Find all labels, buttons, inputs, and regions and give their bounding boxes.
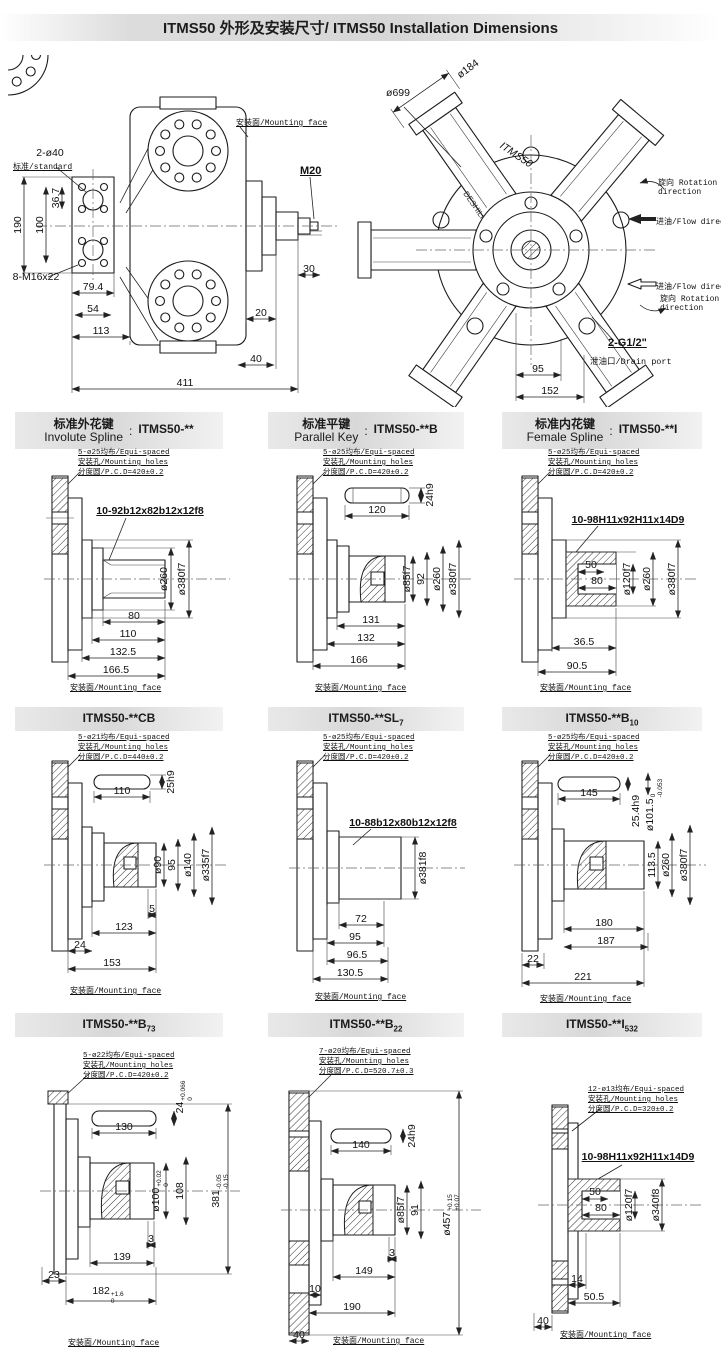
dim-30: 30 — [303, 263, 315, 275]
dim-36-5: 36.5 — [574, 636, 594, 648]
mounting-face-label: 安装面/Mounting face — [560, 1329, 651, 1340]
dim-113: 113 — [93, 325, 110, 337]
dim-o260: ø260 — [158, 567, 170, 591]
dim-91: 91 — [409, 1204, 421, 1216]
drawing-involute-spline: 5-ø25均布/Equi-spaced安装孔/Mounting holes分度圆… — [8, 448, 246, 706]
mounting-holes-annotation: 5-ø25均布/Equi-spaced安装孔/Mounting holes分度圆… — [78, 448, 170, 478]
dim-411: 411 — [177, 377, 194, 389]
dim-113-5: 113.5 — [646, 852, 658, 878]
sl7-drawing — [253, 733, 496, 1008]
dim-95: 95 — [532, 363, 544, 375]
dim-key-25-4h9: 25.4h9 — [630, 795, 642, 827]
dim-o381f8: ø381f8 — [417, 852, 429, 885]
dim-bore-80: 80 — [591, 575, 603, 587]
mounting-holes-annotation: 5-ø21均布/Equi-spaced安装孔/Mounting holes分度圆… — [78, 733, 170, 763]
dim-o120f7: ø120f7 — [623, 1189, 635, 1222]
dim-50-5: 50.5 — [584, 1291, 604, 1303]
dim-187: 187 — [597, 935, 615, 947]
dim-40: 40 — [537, 1315, 549, 1327]
dim-o335f7: ø335f7 — [200, 849, 212, 882]
drawing-b10: 5-ø25均布/Equi-spaced安装孔/Mounting holes分度圆… — [478, 733, 721, 1008]
dim-o120f7: ø120f7 — [621, 563, 633, 596]
dim-key-140: 140 — [352, 1139, 370, 1151]
dim-96-5: 96.5 — [347, 949, 367, 961]
dim-131: 131 — [362, 614, 380, 626]
mounting-holes-annotation: 5-ø25均布/Equi-spaced安装孔/Mounting holes分度圆… — [548, 733, 640, 763]
dim-22: 22 — [527, 953, 539, 965]
dim-190: 190 — [12, 216, 24, 234]
model-name: ITMS50-** — [138, 422, 193, 438]
flow-direction-label-bottom: 进油/Flow direction — [656, 281, 721, 292]
header-sl7: ITMS50-**SL7 — [268, 707, 464, 731]
dim-36-7: 36.7 — [50, 188, 62, 208]
header-involute-spline: 标准外花键Involute Spline : ITMS50-** — [15, 412, 223, 449]
dim-14: 14 — [571, 1273, 583, 1285]
dim-130-5: 130.5 — [337, 967, 363, 979]
mounting-holes-annotation: 5-ø25均布/Equi-spaced安装孔/Mounting holes分度圆… — [323, 448, 415, 478]
mounting-face-label: 安装面/Mounting face — [70, 985, 161, 996]
side-view: 安装面/Mounting face 2-ø40 标准/standard 190 … — [8, 55, 358, 407]
rotation-direction-label-top: 旋向 Rotation direction — [658, 179, 721, 197]
dim-110: 110 — [120, 628, 137, 640]
header-i532: ITMS50-**I532 — [502, 1013, 702, 1037]
drawing-i532: 12-ø13均布/Equi-spaced安装孔/Mounting holes分度… — [510, 1075, 721, 1361]
dim-20: 20 — [255, 307, 267, 319]
header-b73: ITMS50-**B73 — [15, 1013, 223, 1037]
page-title-text: ITMS50 外形及安装尺寸/ ITMS50 Installation Dime… — [163, 17, 558, 38]
dim-80: 80 — [128, 610, 140, 622]
front-view: ø699 ø184 ITMS50 DESHILI 旋向 Rotation dir… — [356, 55, 720, 407]
dim-o380f7: ø380f7 — [666, 563, 678, 596]
dim-o260: ø260 — [641, 567, 653, 591]
mounting-face-label: 安装面/Mounting face — [540, 993, 631, 1004]
dim-95: 95 — [349, 931, 361, 943]
standard-label: 标准/standard — [13, 161, 72, 172]
dim-o100-tol: ø100+0.020 — [150, 1170, 170, 1211]
b22-drawing — [253, 1045, 498, 1357]
dim-o101-5-tol: ø101.50-0.053 — [644, 779, 664, 831]
dim-key-24h9: 24h9 — [424, 483, 436, 506]
header-parallel-key: 标准平键Parallel Key : ITMS50-**B — [268, 412, 464, 449]
dim-key-120: 120 — [368, 504, 386, 516]
header-female-spline: 标准内花键Female Spline : ITMS50-**I — [502, 412, 702, 449]
drawing-b73: 5-ø22均布/Equi-spaced安装孔/Mounting holes分度圆… — [8, 1045, 253, 1357]
dim-190: 190 — [343, 1301, 361, 1313]
header-cb: ITMS50-**CB — [15, 707, 223, 731]
drawing-cb: 5-ø21均布/Equi-spaced安装孔/Mounting holes分度圆… — [8, 733, 251, 1008]
dim-10: 10 — [309, 1283, 321, 1295]
dim-152: 152 — [541, 385, 559, 397]
mounting-face-label: 安装面/Mounting face — [68, 1337, 159, 1348]
dim-key-110: 110 — [114, 785, 131, 797]
dim-2-o40: 2-ø40 — [36, 147, 63, 159]
dim-221: 221 — [574, 971, 592, 983]
header-cn: 标准外花键 — [54, 418, 114, 431]
header-en: Involute Spline — [44, 431, 123, 444]
spline-spec-label: 10-88b12x80b12x12f8 — [349, 817, 456, 829]
dim-166: 166 — [350, 654, 368, 666]
mounting-holes-annotation: 5-ø25均布/Equi-spaced安装孔/Mounting holes分度圆… — [323, 733, 415, 763]
dim-o140: ø140 — [182, 853, 194, 877]
dim-108: 108 — [174, 1182, 186, 1200]
dim-40: 40 — [293, 1329, 305, 1341]
dim-149: 149 — [355, 1265, 373, 1277]
dim-key-24h9: 24h9 — [406, 1124, 418, 1147]
dim-o260: ø260 — [660, 853, 672, 877]
drain-port-label: 泄油口/Drain port — [590, 355, 672, 367]
cb-drawing — [8, 733, 251, 1008]
mounting-face-label: 安装面/Mounting face — [315, 682, 406, 693]
side-view-drawing — [8, 55, 358, 407]
dim-8-m16x22: 8-M16x22 — [13, 271, 60, 283]
flow-direction-label-top: 进油/Flow direction — [656, 216, 721, 227]
dim-o85f7: ø85f7 — [401, 566, 413, 593]
spline-spec-label: 10-92b12x82b12x12f8 — [96, 505, 203, 517]
catalog-page: ITMS50 外形及安装尺寸/ ITMS50 Installation Dime… — [0, 0, 721, 1361]
dim-90-5: 90.5 — [567, 660, 587, 672]
dim-o380f7: ø380f7 — [176, 563, 188, 596]
dim-key-130: 130 — [115, 1121, 133, 1133]
dim-95: 95 — [166, 859, 178, 871]
dim-381-tol: 381-0.05-0.15 — [210, 1174, 230, 1207]
dim-o340f8: ø340f8 — [650, 1189, 662, 1222]
drawing-sl7: 5-ø25均布/Equi-spaced安装孔/Mounting holes分度圆… — [253, 733, 496, 1008]
dim-24: 24 — [74, 939, 86, 951]
dim-o85f7: ø85f7 — [395, 1197, 407, 1224]
header-sep: : — [129, 424, 132, 438]
dim-key-24-tol: 24+0.0660 — [174, 1081, 194, 1114]
page-title: ITMS50 外形及安装尺寸/ ITMS50 Installation Dime… — [0, 14, 721, 41]
rotation-cn: 旋向 — [658, 179, 674, 188]
dim-o699: ø699 — [386, 87, 410, 99]
mounting-holes-annotation: 12-ø13均布/Equi-spaced安装孔/Mounting holes分度… — [588, 1085, 684, 1115]
dim-123: 123 — [115, 921, 133, 933]
dim-79-4: 79.4 — [83, 281, 103, 293]
drawing-b22: 7-ø20均布/Equi-spaced安装孔/Mounting holes分度圆… — [253, 1045, 498, 1357]
model-name: ITMS50-**I — [619, 422, 678, 438]
dim-40: 40 — [250, 353, 262, 365]
dim-5: 5 — [149, 903, 155, 915]
dim-153: 153 — [103, 957, 121, 969]
dim-72: 72 — [355, 913, 367, 925]
mounting-holes-annotation: 5-ø25均布/Equi-spaced安装孔/Mounting holes分度圆… — [548, 448, 640, 478]
dim-key-145: 145 — [580, 787, 598, 799]
mounting-holes-annotation: 7-ø20均布/Equi-spaced安装孔/Mounting holes分度圆… — [319, 1047, 414, 1077]
spline-spec-label: 10-98H11x92H11x14D9 — [582, 1151, 695, 1163]
dim-132: 132 — [357, 632, 375, 644]
mounting-face-label: 安装面/Mounting face — [70, 682, 161, 693]
dim-bore-80: 80 — [595, 1202, 607, 1214]
drawing-female-spline: 5-ø25均布/Equi-spaced安装孔/Mounting holes分度圆… — [478, 448, 721, 706]
dim-180: 180 — [595, 917, 613, 929]
header-b22: ITMS50-**B22 — [268, 1013, 464, 1037]
dim-bore-50: 50 — [585, 559, 597, 571]
dim-o457-tol: ø457+0.15+0.07 — [441, 1194, 461, 1235]
dim-54: 54 — [87, 303, 99, 315]
cylinder-head — [8, 55, 48, 95]
dim-100: 100 — [34, 216, 46, 234]
dim-o380f7: ø380f7 — [678, 849, 690, 882]
dim-o90: ø90 — [152, 856, 164, 874]
dim-92: 92 — [415, 573, 427, 585]
dim-182-tol: 182+1.60 — [92, 1285, 123, 1305]
dim-23: 23 — [48, 1269, 60, 1281]
dim-3: 3 — [389, 1247, 395, 1259]
mounting-holes-annotation: 5-ø22均布/Equi-spaced安装孔/Mounting holes分度圆… — [83, 1051, 175, 1081]
dim-o260: ø260 — [431, 567, 443, 591]
dim-key-25h9: 25h9 — [165, 770, 177, 793]
drawing-parallel-key: 5-ø25均布/Equi-spaced安装孔/Mounting holes分度圆… — [253, 448, 491, 706]
dim-132-5: 132.5 — [110, 646, 136, 658]
rotation-direction-label-bottom: 旋向 Rotation direction — [660, 295, 721, 313]
mounting-face-label: 安装面/Mounting face — [540, 682, 631, 693]
drain-size-label: 2-G1/2" — [608, 337, 647, 349]
dim-3: 3 — [148, 1233, 154, 1245]
mounting-face-label: 安装面/Mounting face — [333, 1335, 424, 1346]
dim-bore-50: 50 — [589, 1186, 601, 1198]
dim-166-5: 166.5 — [103, 664, 129, 676]
dim-139: 139 — [113, 1251, 131, 1263]
model-name: ITMS50-**B — [374, 422, 438, 438]
dim-m20: M20 — [300, 165, 321, 177]
mounting-face-label: 安装面/Mounting face — [315, 991, 406, 1002]
spline-spec-label: 10-98H11x92H11x14D9 — [572, 514, 685, 526]
dim-o380f7: ø380f7 — [447, 563, 459, 596]
header-b10: ITMS50-**B10 — [502, 707, 702, 731]
mounting-face-label: 安装面/Mounting face — [236, 117, 327, 128]
